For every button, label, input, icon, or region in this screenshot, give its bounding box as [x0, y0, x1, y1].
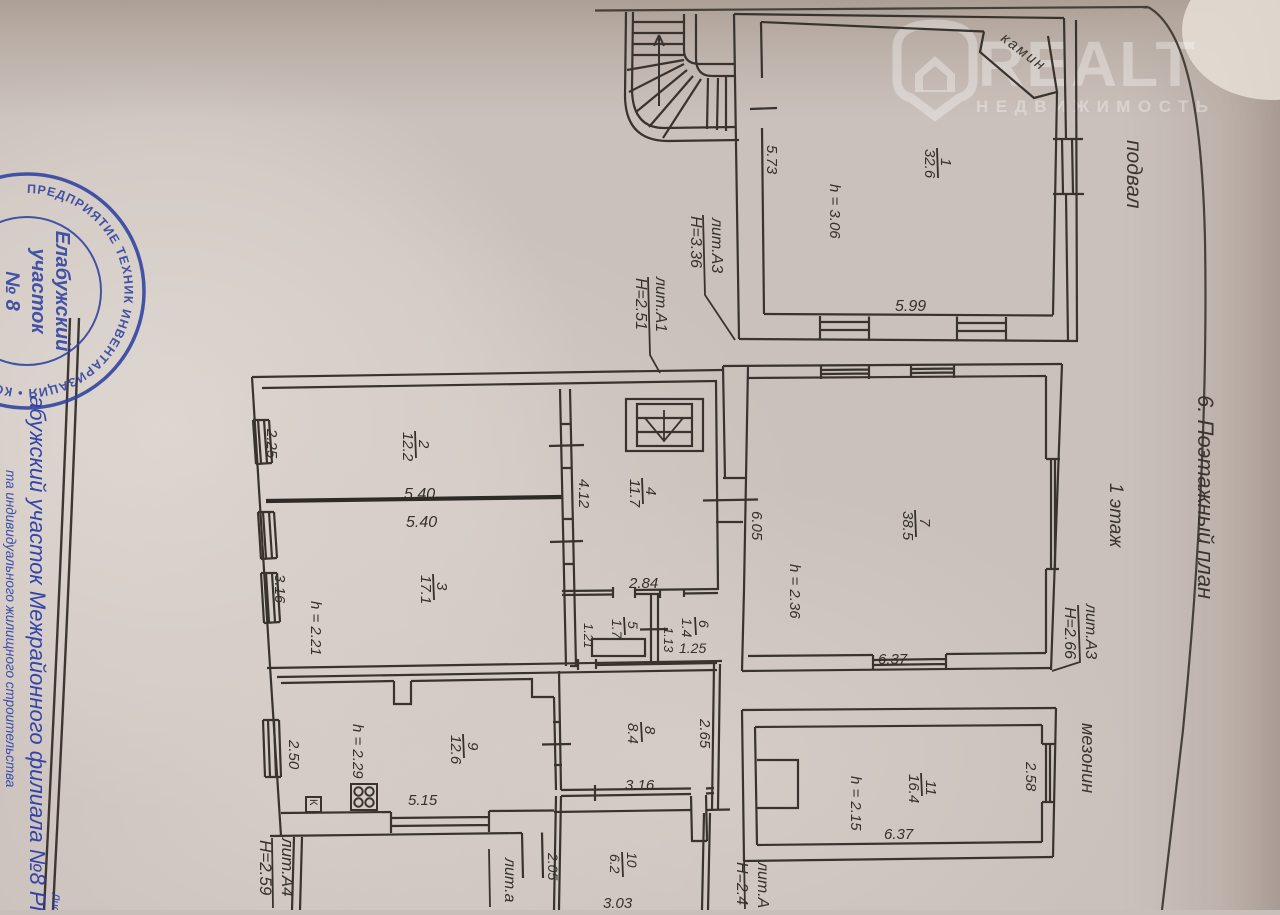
svg-text:Елабужский: Елабужский — [51, 231, 73, 352]
svg-text:11.7: 11.7 — [626, 479, 643, 508]
svg-text:6.37: 6.37 — [884, 826, 914, 843]
svg-text:6.2: 6.2 — [607, 854, 623, 874]
svg-text:5: 5 — [625, 621, 641, 629]
svg-text:6: 6 — [696, 620, 712, 628]
svg-text:11: 11 — [922, 780, 939, 796]
svg-text:лит.А1: лит.А1 — [652, 276, 669, 332]
svg-text:h = 2.36: h = 2.36 — [786, 564, 803, 619]
svg-text:17.1: 17.1 — [417, 575, 434, 604]
svg-text:4.12: 4.12 — [575, 479, 592, 509]
svg-text:Лист: Лист — [49, 892, 61, 910]
svg-text:Н=3.36: Н=3.36 — [687, 216, 704, 268]
svg-text:2.05: 2.05 — [545, 852, 561, 880]
svg-text:5.40: 5.40 — [406, 514, 437, 531]
svg-text:1 этаж: 1 этаж — [1105, 483, 1126, 548]
svg-text:12.2: 12.2 — [399, 432, 416, 462]
svg-text:2.65: 2.65 — [696, 718, 713, 749]
svg-text:подвал: подвал — [1122, 140, 1145, 209]
svg-text:Н=2.51: Н=2.51 — [632, 278, 649, 330]
svg-text:№ 8: № 8 — [1, 271, 23, 311]
svg-text:6. Поэтажный план: 6. Поэтажный план — [1193, 395, 1218, 599]
svg-text:лит.А3: лит.А3 — [708, 217, 725, 273]
svg-text:К: К — [307, 799, 319, 806]
svg-text:h = 2.21: h = 2.21 — [307, 601, 324, 656]
svg-text:1.13: 1.13 — [661, 627, 676, 653]
svg-text:лит.А3: лит.А3 — [1082, 603, 1099, 659]
svg-text:5.73: 5.73 — [763, 145, 780, 175]
svg-text:8: 8 — [641, 726, 658, 735]
svg-text:абужский участок Межрайонного: абужский участок Межрайонного филиала №8… — [25, 396, 50, 910]
svg-text:лит.А: лит.А — [754, 861, 771, 908]
svg-text:та индивидуального жилищного с: та индивидуального жилищного строительст… — [3, 470, 18, 788]
svg-text:5.99: 5.99 — [895, 298, 926, 315]
svg-text:мезонин: мезонин — [1078, 723, 1098, 793]
svg-text:2.58: 2.58 — [1022, 761, 1039, 792]
svg-text:12.6: 12.6 — [447, 735, 464, 765]
svg-text:1.4: 1.4 — [679, 618, 695, 638]
svg-text:2.25: 2.25 — [263, 428, 280, 459]
svg-text:НЕДВИЖИМОСТЬ: НЕДВИЖИМОСТЬ — [976, 97, 1216, 116]
svg-text:7: 7 — [916, 518, 933, 527]
svg-text:5.40: 5.40 — [404, 486, 435, 503]
svg-text:лит.а: лит.а — [501, 857, 518, 903]
svg-text:3.16: 3.16 — [271, 574, 288, 604]
svg-text:2.84: 2.84 — [628, 575, 658, 592]
svg-text:3.16: 3.16 — [625, 777, 655, 794]
svg-text:h = 3.06: h = 3.06 — [826, 184, 843, 239]
svg-text:32.6: 32.6 — [921, 149, 938, 179]
svg-text:3.03: 3.03 — [603, 895, 633, 910]
svg-text:6.37: 6.37 — [878, 651, 908, 668]
svg-text:8.4: 8.4 — [624, 723, 641, 744]
svg-text:2: 2 — [415, 439, 432, 449]
svg-text:3: 3 — [433, 582, 450, 591]
svg-text:1.25: 1.25 — [679, 640, 706, 656]
svg-text:1.7: 1.7 — [609, 619, 625, 640]
svg-text:участок: участок — [27, 248, 49, 335]
svg-text:h = 2.15: h = 2.15 — [847, 776, 864, 831]
svg-text:1.21: 1.21 — [581, 623, 596, 648]
svg-text:9: 9 — [464, 742, 481, 751]
svg-text:5.15: 5.15 — [408, 792, 438, 809]
svg-text:4: 4 — [642, 487, 659, 495]
svg-text:h = 2.29: h = 2.29 — [349, 724, 366, 779]
svg-text:6.05: 6.05 — [748, 511, 765, 541]
svg-text:10: 10 — [624, 852, 640, 868]
svg-text:2.50: 2.50 — [285, 739, 302, 770]
svg-text:лит.А4: лит.А4 — [278, 837, 297, 897]
svg-text:1: 1 — [937, 158, 954, 166]
svg-text:Н=2.4: Н=2.4 — [733, 862, 750, 905]
svg-text:16.4: 16.4 — [905, 774, 922, 803]
svg-text:38.5: 38.5 — [899, 511, 916, 541]
svg-text:Н=2.66: Н=2.66 — [1061, 607, 1078, 659]
